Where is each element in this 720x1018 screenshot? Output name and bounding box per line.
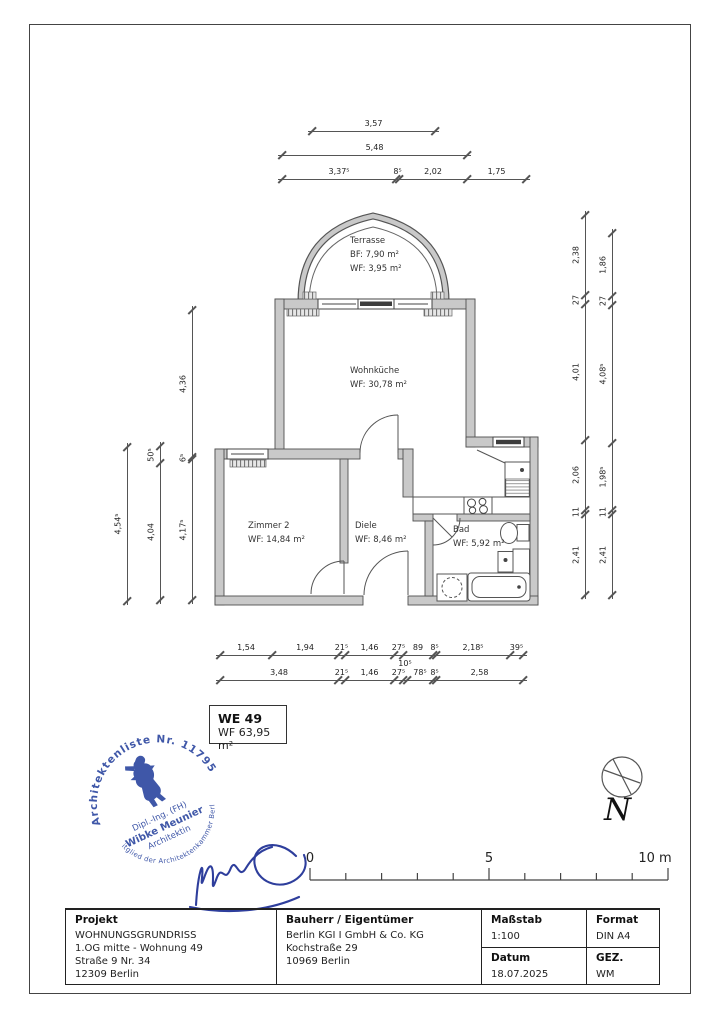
projekt-line: 12309 Berlin	[66, 968, 276, 981]
stamp-ring-bottom-text: Mitglied der Architektenkammer Berlin	[0, 48, 232, 929]
room-name: Zimmer 2	[248, 519, 305, 533]
wall	[457, 514, 530, 521]
radiators	[230, 292, 452, 467]
room-label-terrasse: Terrasse BF: 7,90 m² WF: 3,95 m²	[350, 234, 402, 276]
stamp-ring-top-text: ● Architektenliste Nr. 11795 ●	[0, 38, 221, 873]
titleblock-format-gez: Format DIN A4 GEZ. WM	[586, 910, 659, 984]
dimension-label: 2,18⁵	[462, 643, 483, 652]
dimension-label: 27⁵	[392, 643, 405, 652]
titleblock-bauherr: Bauherr / Eigentümer Berlin KGI I GmbH &…	[276, 910, 482, 984]
room-label-diele: Diele WF: 8,46 m²	[355, 519, 407, 547]
svg-text:● Architektenliste Nr. 11795 ●: ● Architektenliste Nr. 11795 ●	[0, 38, 221, 873]
dimension-line	[278, 179, 530, 180]
scale-label-10: 10 m	[638, 851, 671, 866]
wall	[215, 596, 363, 605]
dimension-label: 11	[599, 507, 608, 517]
room-area-wf: WF: 8,46 m²	[355, 533, 407, 547]
room-area-wf: WF: 14,84 m²	[248, 533, 305, 547]
radiator	[431, 292, 444, 299]
dimension-label: 3,57	[365, 119, 383, 128]
dimension-line	[278, 155, 471, 156]
door-zimmer2	[311, 561, 344, 594]
dimension-label: 4,08⁵	[599, 363, 608, 384]
dimension-label: 4,01	[572, 363, 581, 381]
room-area-wf: WF: 30,78 m²	[350, 378, 407, 392]
berlin-bear-emblem	[122, 752, 170, 812]
dimension-label: 4,17⁵	[179, 519, 188, 540]
dimension-line	[612, 229, 613, 599]
format-header: Format	[587, 910, 659, 929]
room-area-wf: WF: 3,95 m²	[350, 262, 402, 276]
apartment-id: WE 49	[218, 711, 286, 726]
titleblock-scale-date: Maßstab 1:100 Datum 18.07.2025	[481, 910, 587, 984]
bauherr-header: Bauherr / Eigentümer	[277, 910, 482, 929]
dimension-label: 8⁵	[430, 643, 438, 652]
dimension-label: 1,94	[296, 643, 314, 652]
scale-label-0: 0	[306, 851, 314, 866]
radiator	[287, 309, 319, 316]
dimension-label: 2,06	[572, 466, 581, 484]
dimension-label: 2,02	[424, 167, 442, 176]
dimension-label: 2,38	[572, 246, 581, 264]
wall	[530, 437, 538, 605]
titleblock-projekt: Projekt WOHNUNGSGRUNDRISS 1.OG mitte - W…	[66, 910, 276, 981]
washbasin-cabinet	[513, 549, 530, 574]
dimension-label: 78⁵	[413, 668, 426, 677]
dimension-label: 1,75	[488, 167, 506, 176]
massstab-header: Maßstab	[482, 910, 587, 929]
dimension-label: 21⁵	[335, 668, 348, 677]
datum-header: Datum	[482, 948, 587, 967]
radiator	[424, 309, 452, 316]
apartment-info-box: WE 49 WF 63,95 m²	[209, 705, 287, 744]
dimension-label: 5,48	[366, 143, 384, 152]
room-name: Diele	[355, 519, 407, 533]
bauherr-line: Kochstraße 29	[277, 942, 482, 955]
bauherr-line: Berlin KGI I GmbH & Co. KG	[277, 929, 482, 942]
wall	[275, 299, 284, 454]
wall	[466, 437, 493, 447]
dimension-line	[216, 680, 527, 681]
projekt-line: WOHNUNGSGRUNDRISS	[66, 929, 276, 942]
dimension-label: 8⁵	[430, 668, 438, 677]
radiator	[230, 460, 266, 467]
dimension-label: 2,41	[572, 546, 581, 564]
dimension-label: 1,86	[599, 256, 608, 274]
dimension-label: 3,37⁵	[328, 167, 349, 176]
door-wohnkueche	[360, 415, 398, 453]
room-label-wohnkueche: Wohnküche WF: 30,78 m²	[350, 364, 407, 392]
dimension-label: 1,98⁵	[599, 466, 608, 487]
datum-value: 18.07.2025	[482, 967, 587, 980]
dimension-label: 8⁵	[393, 167, 401, 176]
dimension-label: 6⁵	[179, 454, 188, 462]
dimension-label: 11	[572, 507, 581, 517]
wall	[215, 449, 224, 605]
room-name: Terrasse	[350, 234, 402, 248]
room-label-zimmer2: Zimmer 2 WF: 14,84 m²	[248, 519, 305, 547]
wall	[413, 514, 433, 521]
bauherr-line: 10969 Berlin	[277, 955, 482, 968]
projekt-header: Projekt	[66, 910, 276, 929]
dimension-label: 39⁵	[510, 643, 523, 652]
svg-text:Mitglied der Architektenkammer: Mitglied der Architektenkammer Berlin	[0, 48, 232, 929]
wall	[466, 299, 475, 447]
north-label: N	[604, 792, 631, 828]
dimension-label: 27⁵	[392, 668, 405, 677]
title-block: Projekt WOHNUNGSGRUNDRISS 1.OG mitte - W…	[65, 908, 660, 985]
room-area-bf: BF: 7,90 m²	[350, 248, 402, 262]
dimension-label: 1,46	[361, 668, 379, 677]
kitchen-fixtures	[413, 450, 530, 514]
room-name: Bad	[453, 523, 505, 537]
dimension-label: 10⁵	[398, 659, 411, 668]
door-entrance	[364, 551, 408, 595]
dimension-line	[216, 655, 527, 656]
dimension-label: 50⁵	[147, 448, 156, 461]
format-value: DIN A4	[587, 929, 659, 942]
gez-header: GEZ.	[587, 948, 659, 967]
dimension-label: 27	[599, 295, 608, 305]
floor-plan-sheet: 0 5 10 m ● Architektenliste Nr. 11795 ● …	[0, 0, 720, 1018]
gez-value: WM	[587, 967, 659, 980]
scale-bar-labels: 0 5 10 m	[306, 851, 672, 866]
dimension-label: 4,54⁵	[114, 513, 123, 534]
room-area-wf: WF: 5,92 m²	[453, 537, 505, 551]
toilet-cistern	[517, 525, 529, 542]
dimension-line	[127, 443, 128, 605]
dimension-label: 1,46	[361, 643, 379, 652]
dimension-label: 21⁵	[335, 643, 348, 652]
wall	[268, 449, 360, 459]
balcony-door-leaf	[360, 302, 392, 307]
signature	[190, 845, 306, 911]
wall	[340, 459, 348, 563]
dimension-label: 4,04	[147, 523, 156, 541]
dimension-label: 2,58	[471, 668, 489, 677]
projekt-line: Straße 9 Nr. 34	[66, 955, 276, 968]
architect-stamp: ● Architektenliste Nr. 11795 ● Mitglied …	[0, 38, 248, 930]
dimension-label: 3,48	[270, 668, 288, 677]
dimension-label: 4,36	[179, 375, 188, 393]
dimension-label: 89	[413, 643, 423, 652]
dimension-line	[308, 131, 439, 132]
massstab-value: 1:100	[482, 929, 587, 942]
north-symbol	[602, 757, 642, 797]
room-name: Wohnküche	[350, 364, 407, 378]
scale-bar	[310, 868, 668, 880]
room-label-bad: Bad WF: 5,92 m²	[453, 523, 505, 551]
wall	[403, 449, 413, 497]
apartment-area: WF 63,95 m²	[218, 726, 286, 752]
dimension-label: 27	[572, 294, 581, 304]
dimension-label: 1,54	[237, 643, 255, 652]
wall	[425, 521, 433, 596]
scale-label-5: 5	[485, 851, 493, 866]
radiator	[303, 292, 316, 299]
dimension-line	[585, 211, 586, 599]
projekt-line: 1.OG mitte - Wohnung 49	[66, 942, 276, 955]
dimension-label: 2,41	[599, 546, 608, 564]
dimension-line	[160, 442, 161, 604]
